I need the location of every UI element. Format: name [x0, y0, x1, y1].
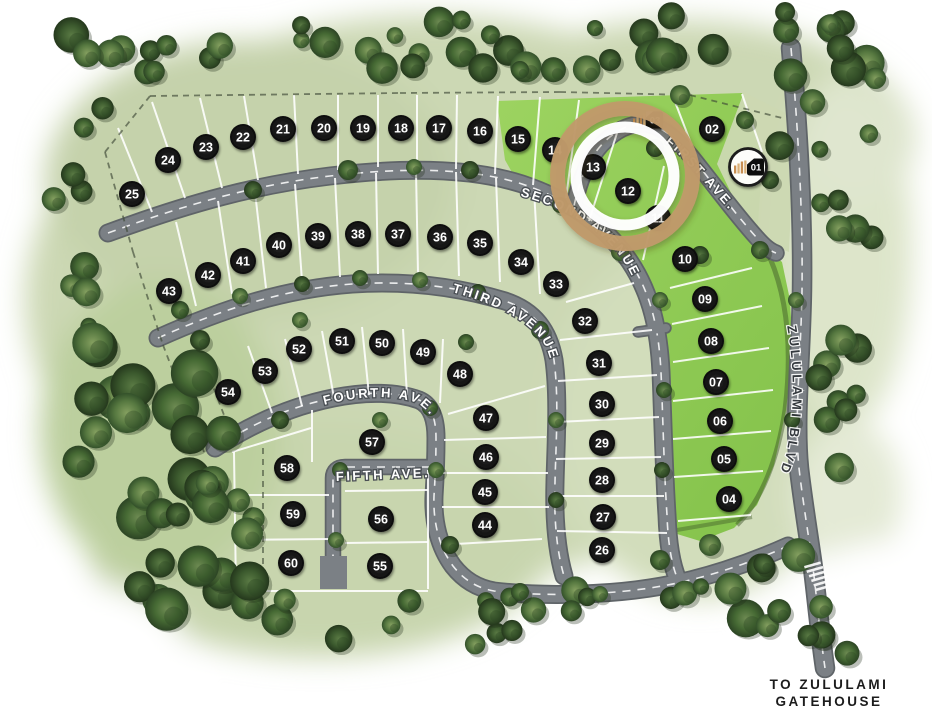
lot-marker-36[interactable]: 36 — [427, 224, 453, 250]
lot-marker-18[interactable]: 18 — [388, 115, 414, 141]
lot-marker-51[interactable]: 51 — [329, 328, 355, 354]
lot-number: 39 — [311, 229, 325, 243]
lot-number: 18 — [394, 121, 408, 135]
lot-number: 02 — [705, 122, 719, 136]
lot-number: 29 — [595, 436, 609, 450]
lot-number: 58 — [280, 461, 294, 475]
site-plan-map: SECOND AVENUE THIRD AVENUE FOURTH AVE. F… — [0, 0, 932, 720]
lot-marker-40[interactable]: 40 — [266, 232, 292, 258]
lot-number: 17 — [432, 121, 446, 135]
lot-marker-53[interactable]: 53 — [252, 358, 278, 384]
site-plan-page: SECOND AVENUE THIRD AVENUE FOURTH AVE. F… — [0, 0, 932, 720]
lot-number: 25 — [125, 187, 139, 201]
lot-marker-16[interactable]: 16 — [467, 118, 493, 144]
lot-marker-56[interactable]: 56 — [368, 506, 394, 532]
lot-number: 26 — [595, 543, 609, 557]
lot-marker-45[interactable]: 45 — [472, 479, 498, 505]
lot-marker-17[interactable]: 17 — [426, 115, 452, 141]
lot-marker-48[interactable]: 48 — [447, 361, 473, 387]
lot-number: 37 — [391, 227, 405, 241]
lot-marker-38[interactable]: 38 — [345, 221, 371, 247]
lot-number: 53 — [258, 364, 272, 378]
lot-number: 10 — [678, 252, 692, 266]
lot-marker-44[interactable]: 44 — [472, 512, 498, 538]
lot-marker-25[interactable]: 25 — [119, 181, 145, 207]
lot-marker-42[interactable]: 42 — [195, 262, 221, 288]
lot-number: 15 — [511, 132, 525, 146]
lot-number: 04 — [722, 492, 736, 506]
lot-marker-05[interactable]: 05 — [711, 446, 737, 472]
lot-marker-04[interactable]: 04 — [716, 486, 742, 512]
lot-number: 07 — [709, 375, 723, 389]
lot-number: 16 — [473, 124, 487, 138]
lot-number: 57 — [365, 435, 379, 449]
lot-number: 60 — [284, 556, 298, 570]
lot-number: 05 — [717, 452, 731, 466]
lot-marker-15[interactable]: 15 — [505, 126, 531, 152]
lot-marker-09[interactable]: 09 — [692, 286, 718, 312]
lot-marker-31[interactable]: 31 — [586, 350, 612, 376]
lot-marker-32[interactable]: 32 — [572, 308, 598, 334]
lot-number: 54 — [221, 385, 235, 399]
gatehouse-direction-line2: GATEHOUSE — [737, 693, 921, 710]
lot-marker-37[interactable]: 37 — [385, 221, 411, 247]
lot-marker-60[interactable]: 60 — [278, 550, 304, 576]
lot-marker-08[interactable]: 08 — [698, 328, 724, 354]
lot-number: 42 — [201, 268, 215, 282]
lot-marker-24[interactable]: 24 — [155, 147, 181, 173]
lot-marker-58[interactable]: 58 — [274, 455, 300, 481]
lot-number: 24 — [161, 153, 175, 167]
lot-marker-49[interactable]: 49 — [410, 339, 436, 365]
lot-marker-35[interactable]: 35 — [467, 230, 493, 256]
lot-icon-01[interactable]: 01 — [730, 149, 767, 186]
lot-number: 38 — [351, 227, 365, 241]
lot-marker-47[interactable]: 47 — [473, 405, 499, 431]
lot-marker-22[interactable]: 22 — [230, 124, 256, 150]
lot-marker-55[interactable]: 55 — [367, 553, 393, 579]
lot-number: 19 — [356, 121, 370, 135]
lot-marker-07[interactable]: 07 — [703, 369, 729, 395]
lot-number: 44 — [478, 518, 492, 532]
lot-marker-20[interactable]: 20 — [311, 115, 337, 141]
lot-number: 52 — [292, 342, 306, 356]
lot-number: 45 — [478, 485, 492, 499]
lot-number: 55 — [373, 559, 387, 573]
lot-number: 20 — [317, 121, 331, 135]
lot-marker-50[interactable]: 50 — [369, 330, 395, 356]
lot-marker-46[interactable]: 46 — [473, 444, 499, 470]
lot-number: 08 — [704, 334, 718, 348]
gatehouse-direction-line1: TO ZULULAMI — [737, 676, 921, 693]
lot-number: 01 — [751, 163, 762, 174]
lot-marker-21[interactable]: 21 — [270, 116, 296, 142]
lot-marker-06[interactable]: 06 — [707, 408, 733, 434]
lot-marker-29[interactable]: 29 — [589, 430, 615, 456]
lot-number: 09 — [698, 292, 712, 306]
lot-marker-30[interactable]: 30 — [589, 391, 615, 417]
lot-number: 31 — [592, 356, 606, 370]
lot-number: 46 — [479, 450, 493, 464]
lot-marker-33[interactable]: 33 — [543, 271, 569, 297]
lot-number: 36 — [433, 230, 447, 244]
lot-number: 32 — [578, 314, 592, 328]
lot-number: 33 — [549, 277, 563, 291]
lot-number: 43 — [162, 284, 176, 298]
lot-marker-28[interactable]: 28 — [589, 467, 615, 493]
lot-marker-34[interactable]: 34 — [508, 249, 534, 275]
lot-number: 59 — [286, 507, 300, 521]
lot-number: 34 — [514, 255, 528, 269]
gatehouse-direction-label: TO ZULULAMI GATEHOUSE — [737, 676, 921, 710]
lot-number: 47 — [479, 411, 493, 425]
lot-marker-43[interactable]: 43 — [156, 278, 182, 304]
lot-number: 49 — [416, 345, 430, 359]
lot-number: 21 — [276, 122, 290, 136]
lot-marker-59[interactable]: 59 — [280, 501, 306, 527]
lot-number: 51 — [335, 334, 349, 348]
lot-number: 50 — [375, 336, 389, 350]
lot-marker-57[interactable]: 57 — [359, 429, 385, 455]
lot-number: 28 — [595, 473, 609, 487]
lot-number: 27 — [596, 510, 610, 524]
lot-number: 13 — [586, 160, 600, 174]
lot-marker-19[interactable]: 19 — [350, 115, 376, 141]
fifth-ave-hammerhead — [320, 556, 347, 589]
lot-number: 56 — [374, 512, 388, 526]
lot-number: 12 — [621, 184, 635, 198]
lot-marker-39[interactable]: 39 — [305, 223, 331, 249]
lot-marker-52[interactable]: 52 — [286, 336, 312, 362]
lot-number: 35 — [473, 236, 487, 250]
lot-marker-26[interactable]: 26 — [589, 537, 615, 563]
lot-number: 23 — [199, 140, 213, 154]
lot-number: 40 — [272, 238, 286, 252]
lot-marker-12[interactable]: 12 — [615, 178, 641, 204]
lot-marker-54[interactable]: 54 — [215, 379, 241, 405]
lot-marker-02[interactable]: 02 — [699, 116, 725, 142]
lot-number: 48 — [453, 367, 467, 381]
lot-marker-23[interactable]: 23 — [193, 134, 219, 160]
lot-number: 41 — [236, 254, 250, 268]
lot-number: 06 — [713, 414, 727, 428]
lot-number: 22 — [236, 130, 250, 144]
lot-number: 30 — [595, 397, 609, 411]
lot-marker-27[interactable]: 27 — [590, 504, 616, 530]
lot-marker-41[interactable]: 41 — [230, 248, 256, 274]
lot-marker-10[interactable]: 10 — [672, 246, 698, 272]
